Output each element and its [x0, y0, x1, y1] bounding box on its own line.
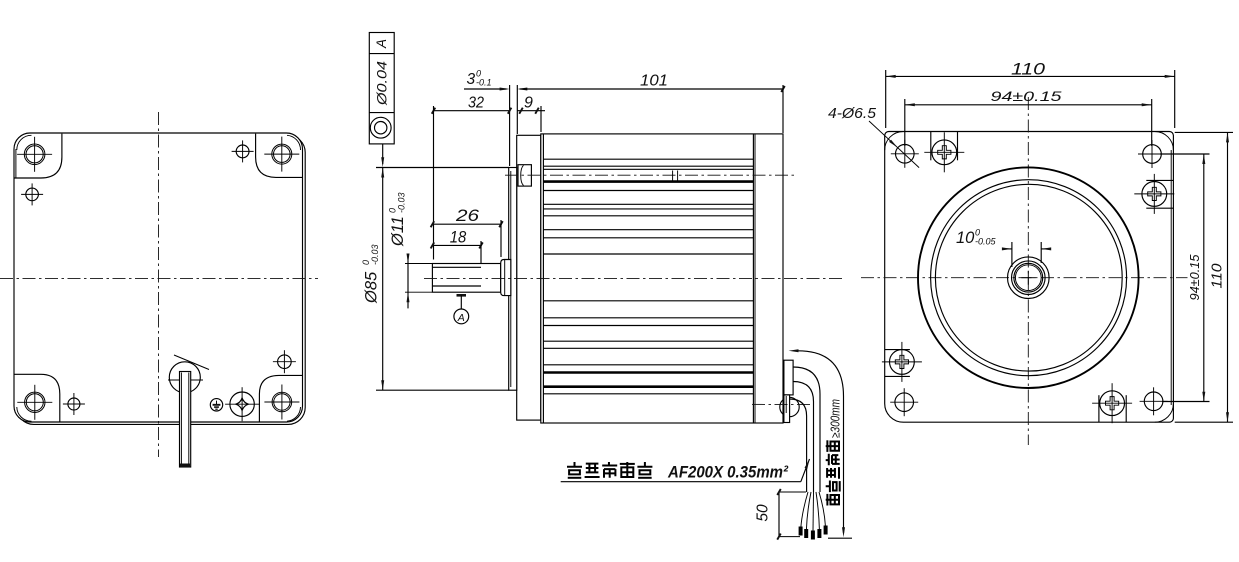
svg-text:-0.05: -0.05 [975, 237, 997, 247]
svg-text:A: A [374, 39, 389, 49]
svg-text:-0.1: -0.1 [476, 78, 492, 88]
svg-text:94±0.15: 94±0.15 [991, 88, 1062, 104]
svg-text:9: 9 [524, 95, 533, 112]
svg-text:18: 18 [450, 228, 467, 247]
svg-text:AF200X 0.35mm²: AF200X 0.35mm² [667, 463, 789, 482]
svg-text:3: 3 [467, 71, 476, 88]
svg-text:110: 110 [1210, 264, 1226, 289]
svg-text:-0.03: -0.03 [397, 192, 407, 213]
svg-text:Ø0.04: Ø0.04 [375, 61, 390, 106]
svg-text:A: A [457, 312, 465, 324]
svg-text:-0.03: -0.03 [370, 244, 380, 265]
svg-text:32: 32 [468, 95, 484, 112]
svg-text:4-Ø6.5: 4-Ø6.5 [828, 106, 877, 122]
svg-text:Ø11: Ø11 [389, 216, 407, 247]
svg-text:101: 101 [640, 73, 668, 90]
svg-text:26: 26 [455, 206, 480, 225]
svg-text:10: 10 [956, 229, 975, 247]
svg-text:≥300mm: ≥300mm [829, 399, 843, 438]
svg-text:110: 110 [1011, 60, 1046, 79]
svg-text:94±0.15: 94±0.15 [1187, 254, 1202, 301]
svg-text:Ø85: Ø85 [363, 271, 381, 304]
svg-text:50: 50 [755, 504, 772, 522]
